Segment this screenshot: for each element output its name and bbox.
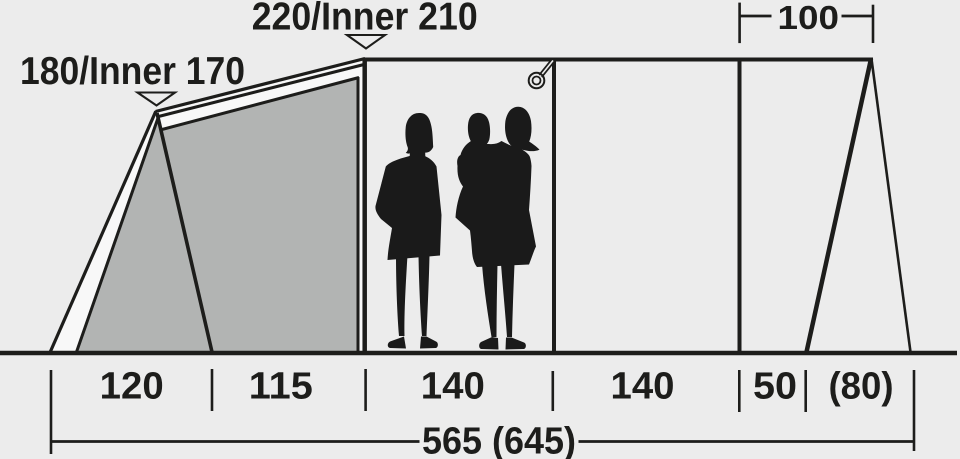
svg-text:565 (645): 565 (645) [422, 421, 576, 459]
svg-text:220/Inner 210: 220/Inner 210 [252, 0, 478, 39]
svg-text:140: 140 [611, 366, 675, 408]
svg-text:115: 115 [249, 366, 313, 408]
svg-text:180/Inner 170: 180/Inner 170 [20, 50, 245, 93]
svg-text:(80): (80) [829, 366, 894, 408]
svg-text:140: 140 [421, 366, 485, 408]
svg-text:50: 50 [753, 366, 797, 408]
svg-text:100: 100 [778, 0, 840, 36]
svg-text:120: 120 [100, 366, 164, 408]
